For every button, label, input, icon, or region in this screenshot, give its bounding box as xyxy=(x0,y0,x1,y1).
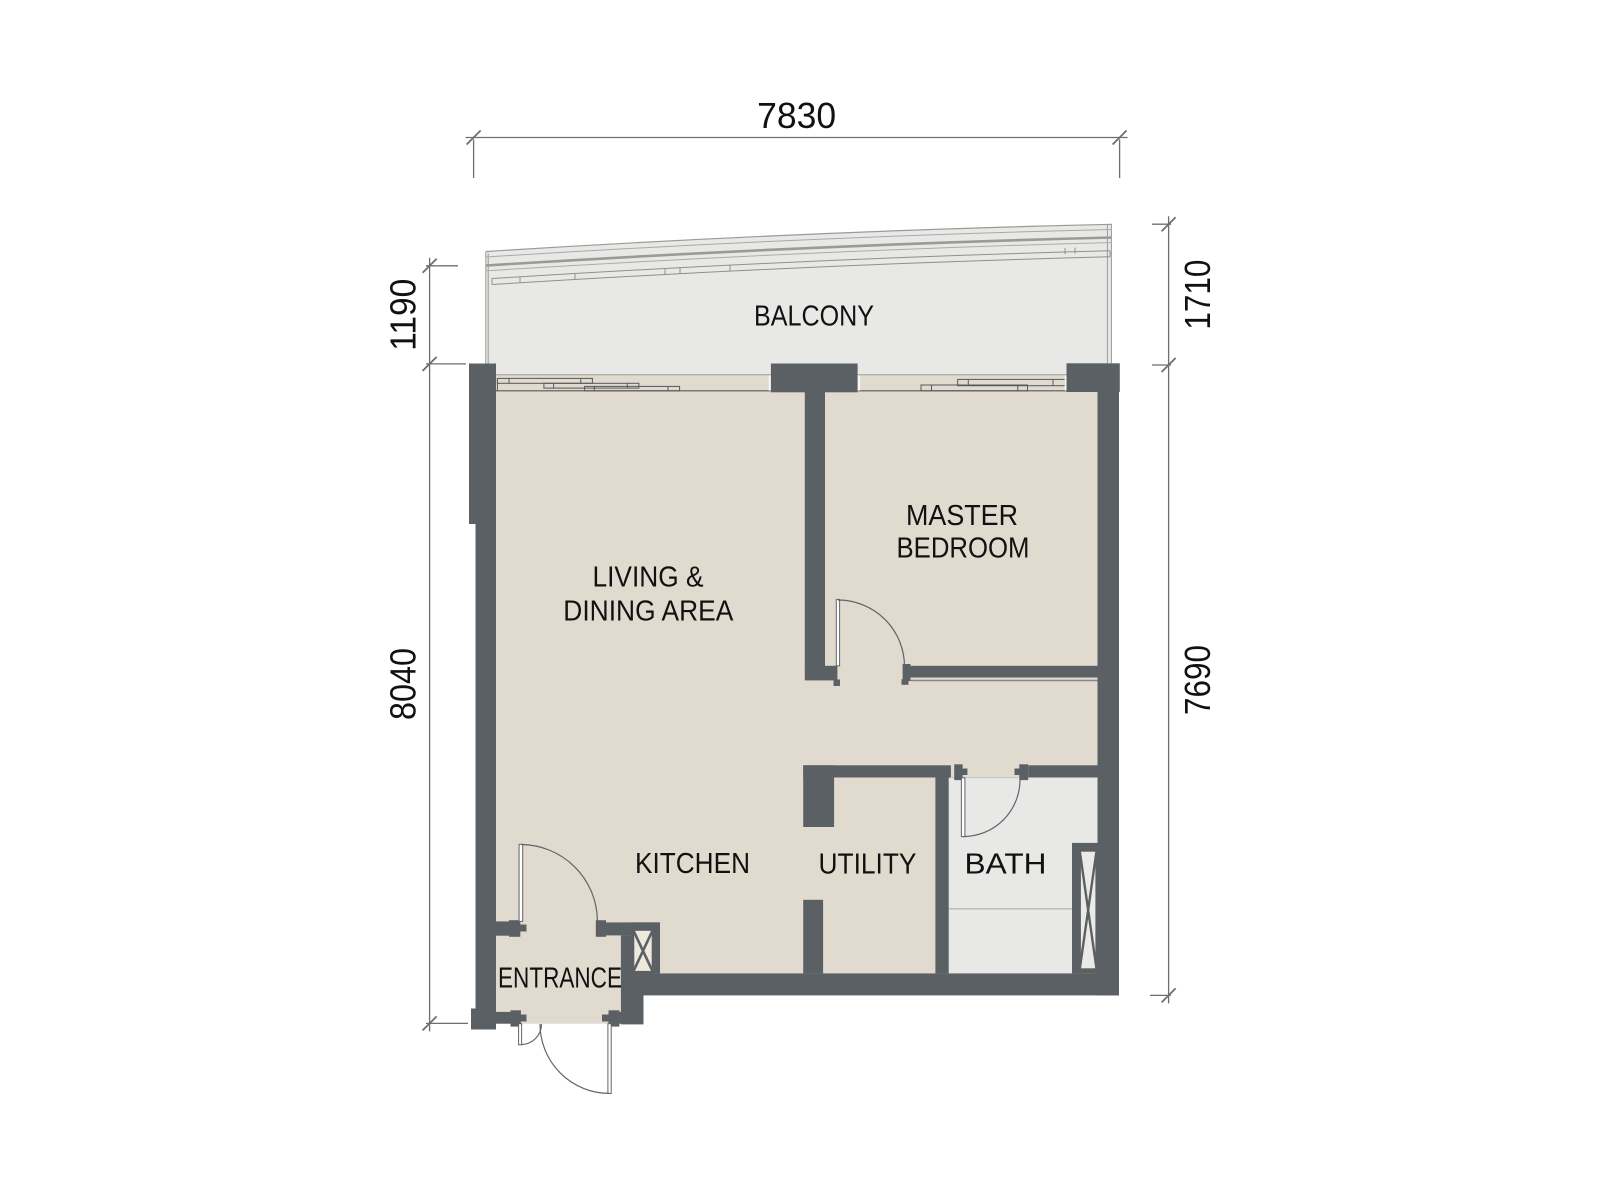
svg-text:DINING AREA: DINING AREA xyxy=(563,595,734,627)
svg-text:ENTRANCE: ENTRANCE xyxy=(498,963,622,995)
svg-text:BALCONY: BALCONY xyxy=(754,301,874,333)
svg-text:BATH: BATH xyxy=(965,849,1047,881)
svg-text:UTILITY: UTILITY xyxy=(819,849,917,881)
svg-text:LIVING &: LIVING & xyxy=(593,562,704,594)
svg-text:BEDROOM: BEDROOM xyxy=(897,533,1030,565)
svg-text:MASTER: MASTER xyxy=(906,500,1018,532)
svg-text:8040: 8040 xyxy=(383,648,424,720)
svg-text:KITCHEN: KITCHEN xyxy=(635,848,750,880)
svg-text:7830: 7830 xyxy=(757,95,836,136)
svg-text:1190: 1190 xyxy=(383,279,424,351)
svg-text:7690: 7690 xyxy=(1177,645,1218,715)
svg-text:1710: 1710 xyxy=(1177,260,1218,330)
